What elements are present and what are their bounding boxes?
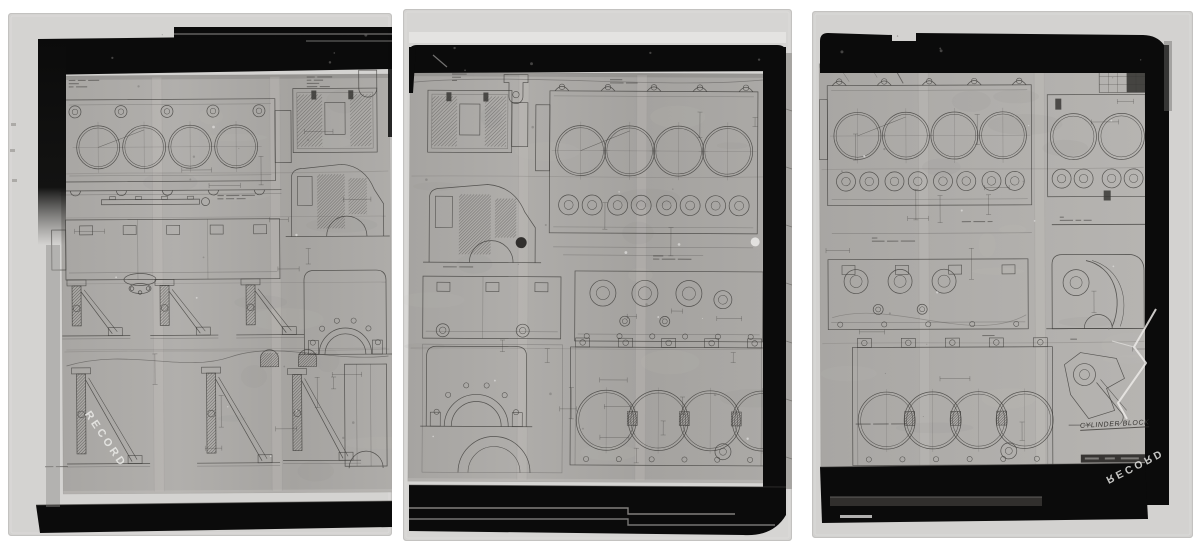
- drawing-sheet: [403, 70, 792, 483]
- engineering-drawing-1: [8, 13, 392, 536]
- film-frame-3: CYLINDER BLOCK RECORD: [812, 11, 1193, 538]
- engineering-drawing-3: [812, 11, 1193, 538]
- film-frame-1: RECORD: [8, 13, 392, 536]
- drawing-sheet: [43, 70, 392, 494]
- scanned-filmstrip: RECORD CYLINDER BLOCK RECORD: [0, 0, 1200, 549]
- film-frame-2: [403, 9, 792, 541]
- drawing-sheet: [819, 62, 1166, 470]
- engineering-drawing-2: [403, 9, 792, 541]
